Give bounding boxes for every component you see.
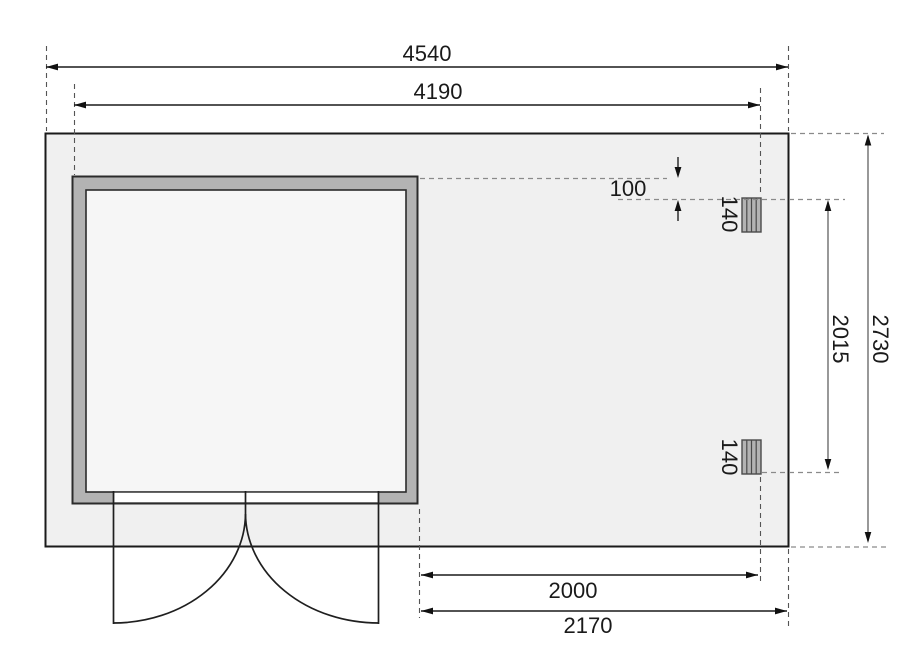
wall-inner-outline [86,190,406,492]
arrowhead-left-icon [421,608,433,615]
floor-plan-drawing: 4540 4190 100 140 140 2015 2730 2000 217… [0,0,914,664]
label-total-depth: 2730 [869,315,891,364]
arrowhead-right-icon [748,102,760,109]
arrowhead-left-icon [74,102,86,109]
label-annex-outer: 2170 [564,615,613,637]
arrowhead-left-icon [46,64,58,71]
arrowhead-right-icon [775,608,787,615]
label-total-width: 4540 [403,43,452,65]
arrowhead-down-icon [865,532,872,543]
post-bottom [742,440,761,474]
arrowhead-left-icon [421,572,433,579]
arrowhead-right-icon [776,64,788,71]
label-post-span: 2015 [829,315,851,364]
label-post-size-bottom: 140 [718,439,740,476]
arrowhead-up-icon [825,200,832,211]
arrowhead-up-icon [865,135,872,146]
label-shed-width: 4190 [414,81,463,103]
post-top [742,198,761,232]
arrowhead-down-icon [825,459,832,470]
shed-room [73,177,418,504]
arrowhead-right-icon [746,572,758,579]
label-annex-inner: 2000 [549,580,598,602]
label-post-size-top: 140 [718,196,740,233]
label-roof-offset: 100 [610,178,647,200]
